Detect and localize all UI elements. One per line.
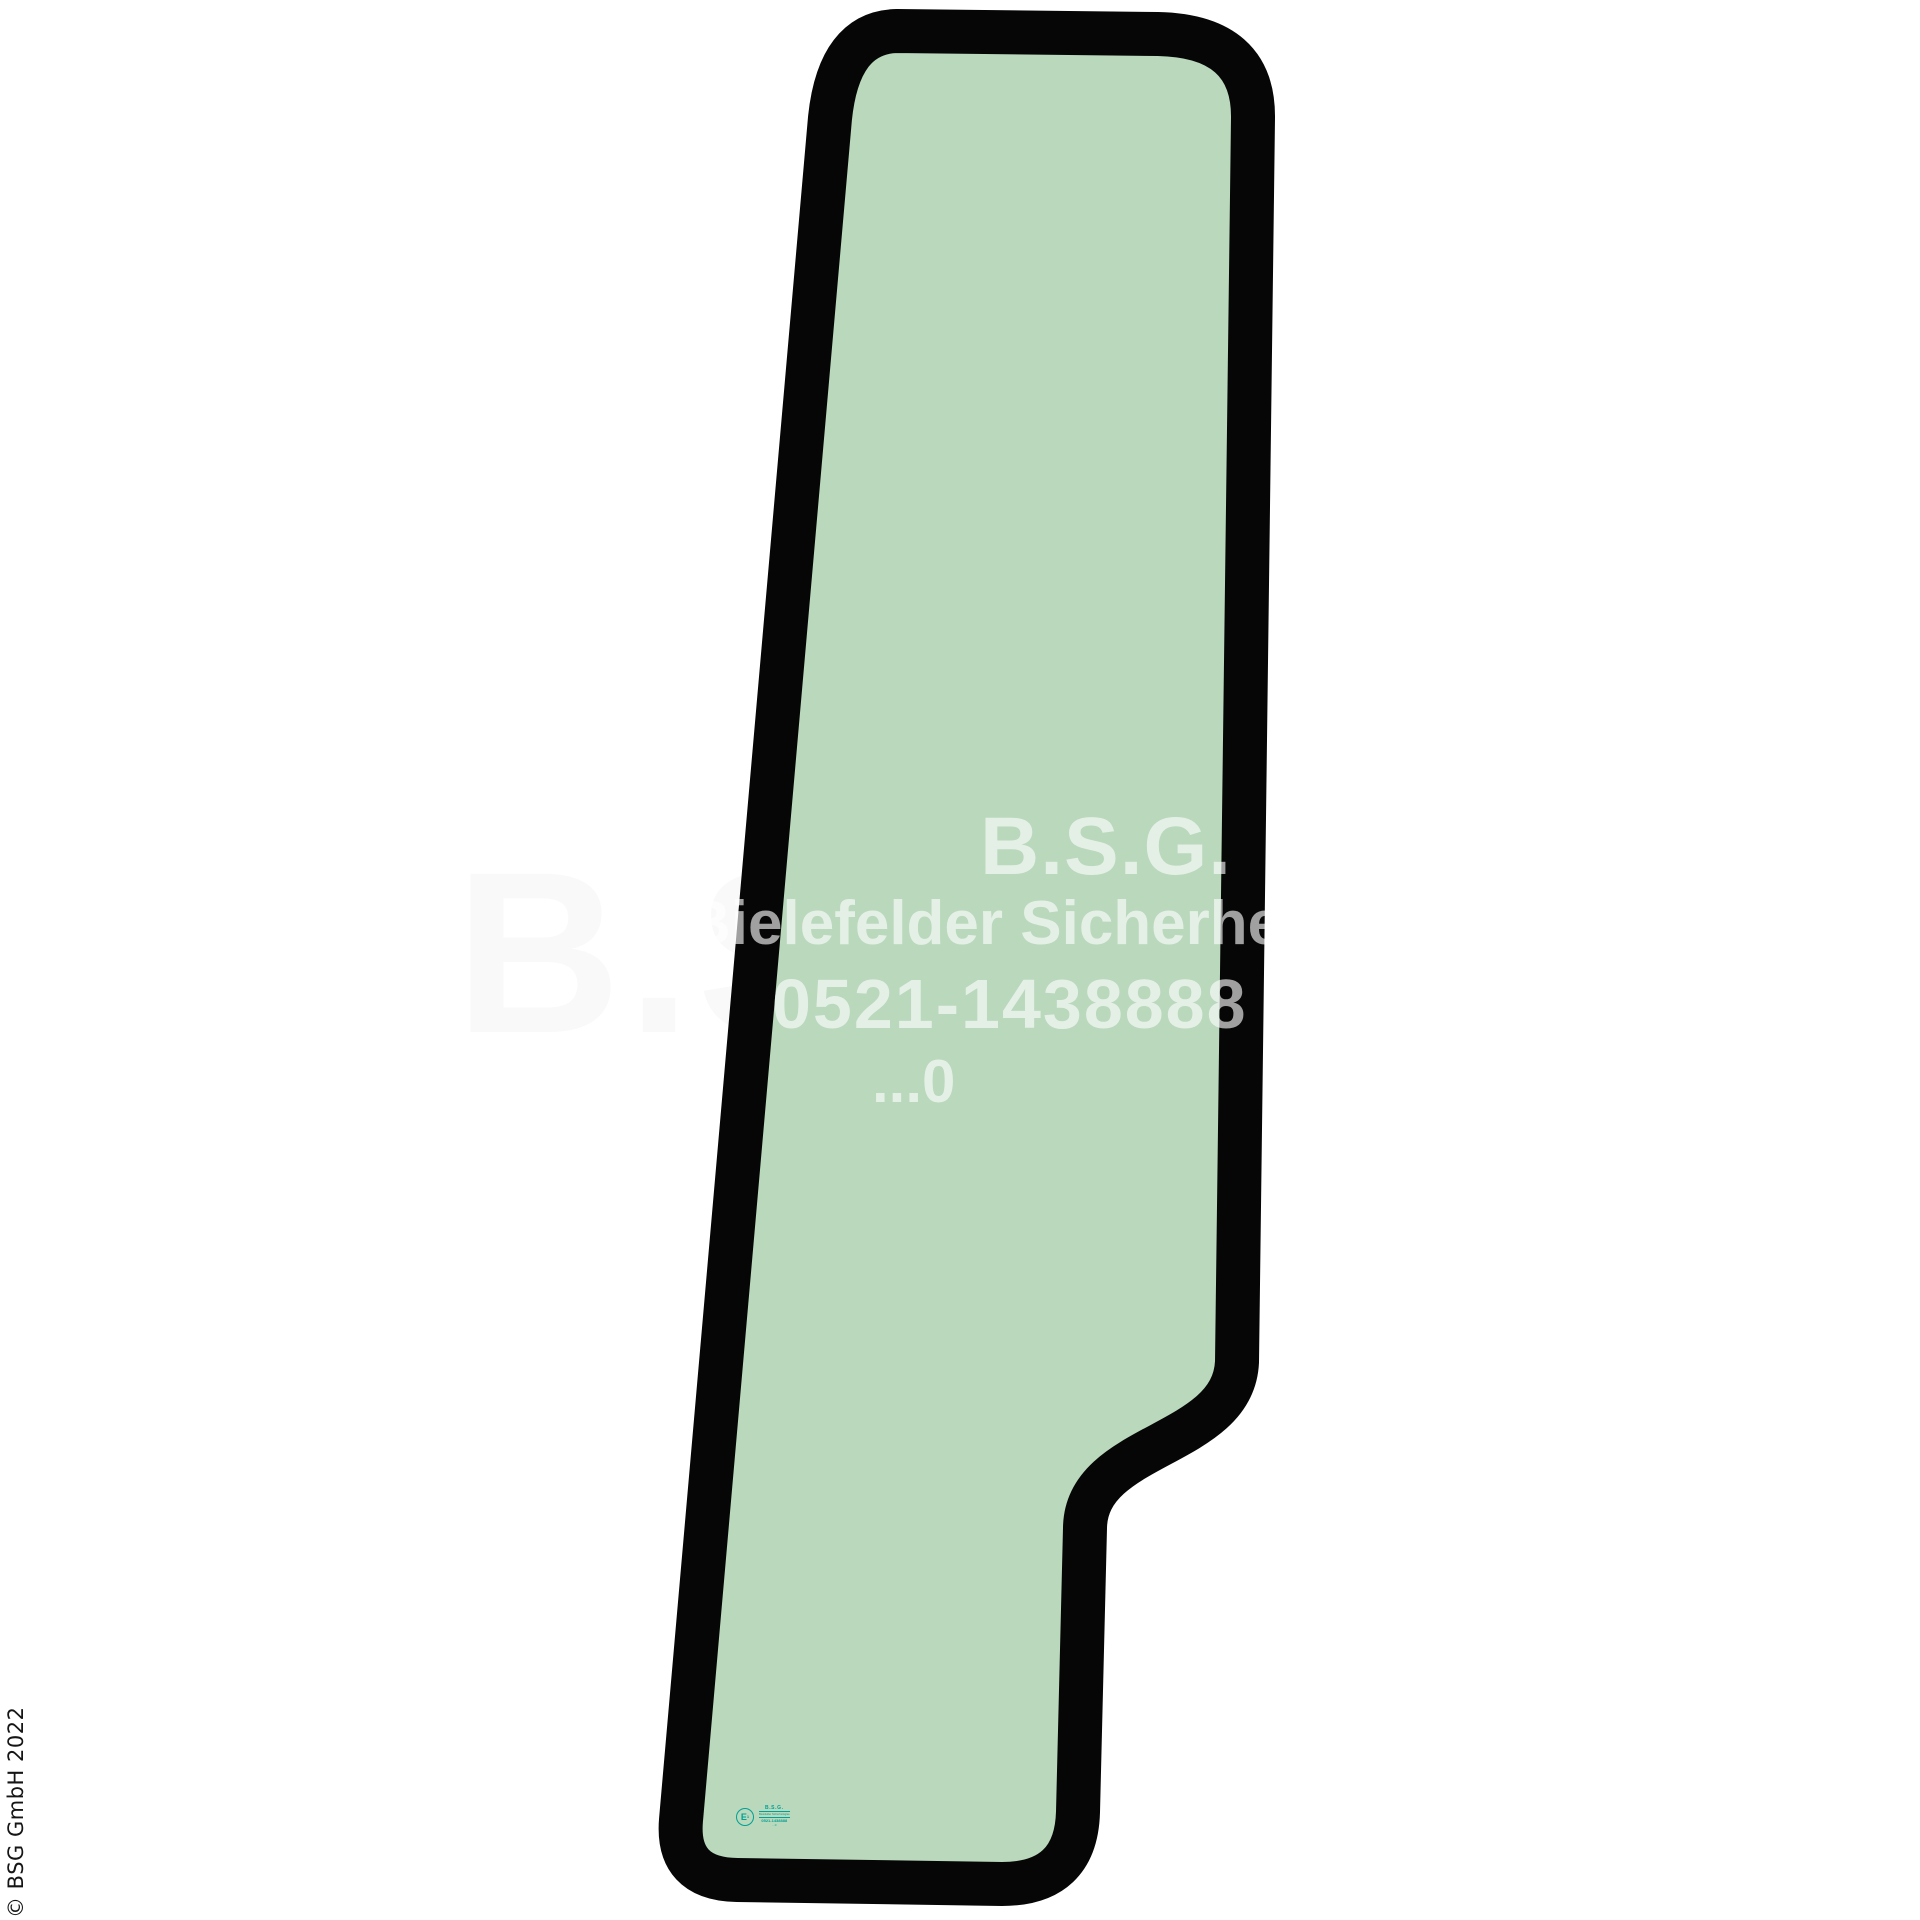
e-mark-number: 1 — [747, 1815, 749, 1819]
stamp-line-suffix: ...0 — [759, 1823, 790, 1828]
watermark-line-company: Bielefelder Sicherheitsglas — [686, 893, 1479, 955]
watermark-line-suffix: ...0 — [872, 1052, 955, 1112]
watermark-line-bsg: B.S.G. — [980, 806, 1232, 888]
stamp-text-block: B.S.G. Bielefelder Sicherheitsglas 0521-… — [759, 1805, 790, 1828]
copyright-label: © BSG GmbH 2022 — [4, 1707, 28, 1918]
watermark-line-phone: 0521-1438888 — [772, 969, 1248, 1039]
e-mark-circle-icon: E1 — [736, 1808, 754, 1826]
glass-shape-svg — [0, 0, 1920, 1920]
approval-stamp: E1 B.S.G. Bielefelder Sicherheitsglas 05… — [736, 1805, 790, 1828]
product-image-canvas: B.S.G. B.S.G. Bielefelder Sicherheitsgla… — [0, 0, 1920, 1920]
